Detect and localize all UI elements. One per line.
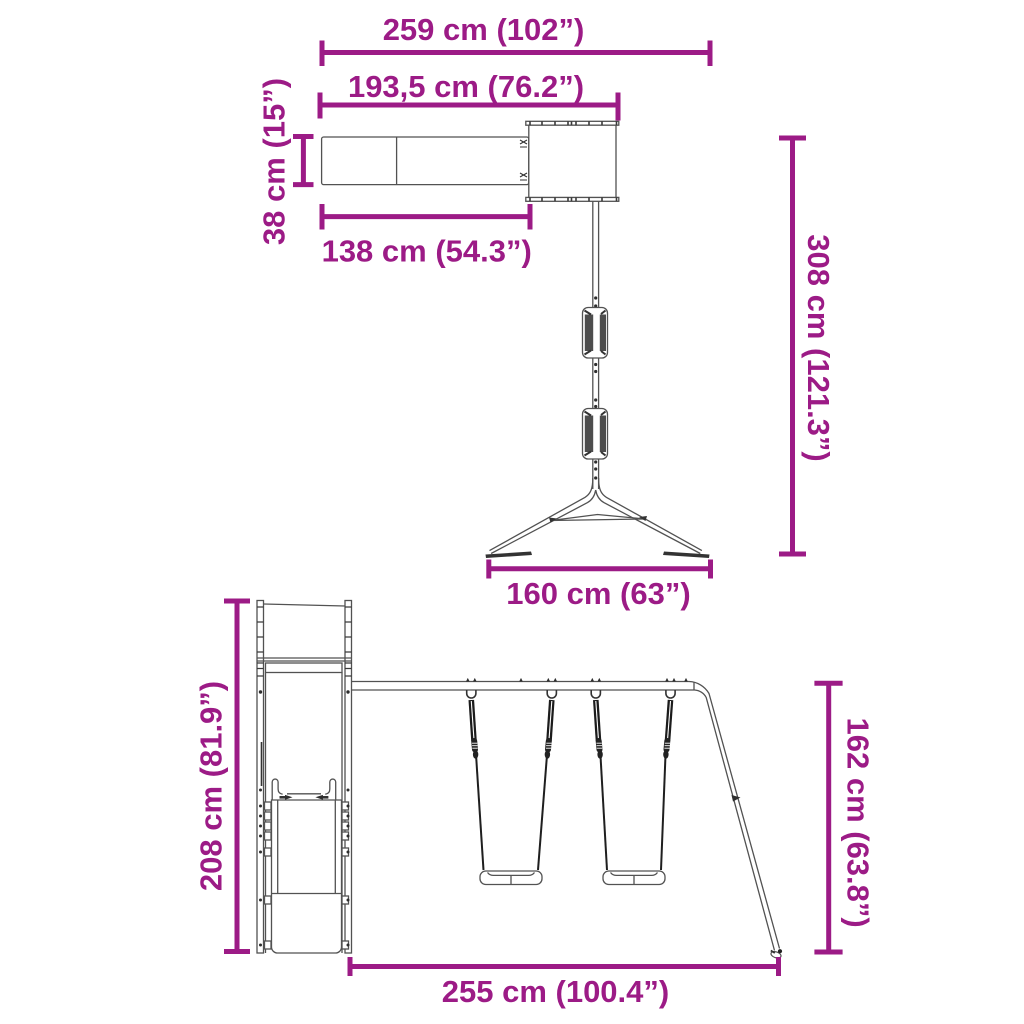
svg-text:255 cm (100.4”): 255 cm (100.4”) xyxy=(442,974,669,1009)
svg-text:162 cm (63.8”): 162 cm (63.8”) xyxy=(841,717,876,927)
svg-text:38 cm (15”): 38 cm (15”) xyxy=(257,78,292,245)
svg-text:138 cm (54.3”): 138 cm (54.3”) xyxy=(322,234,532,269)
svg-text:208 cm (81.9”): 208 cm (81.9”) xyxy=(194,681,229,891)
svg-text:308 cm (121.3”): 308 cm (121.3”) xyxy=(801,234,836,461)
svg-text:259 cm (102”): 259 cm (102”) xyxy=(383,12,585,47)
svg-text:193,5 cm (76.2”): 193,5 cm (76.2”) xyxy=(348,69,584,104)
svg-text:160 cm (63”): 160 cm (63”) xyxy=(506,576,690,611)
